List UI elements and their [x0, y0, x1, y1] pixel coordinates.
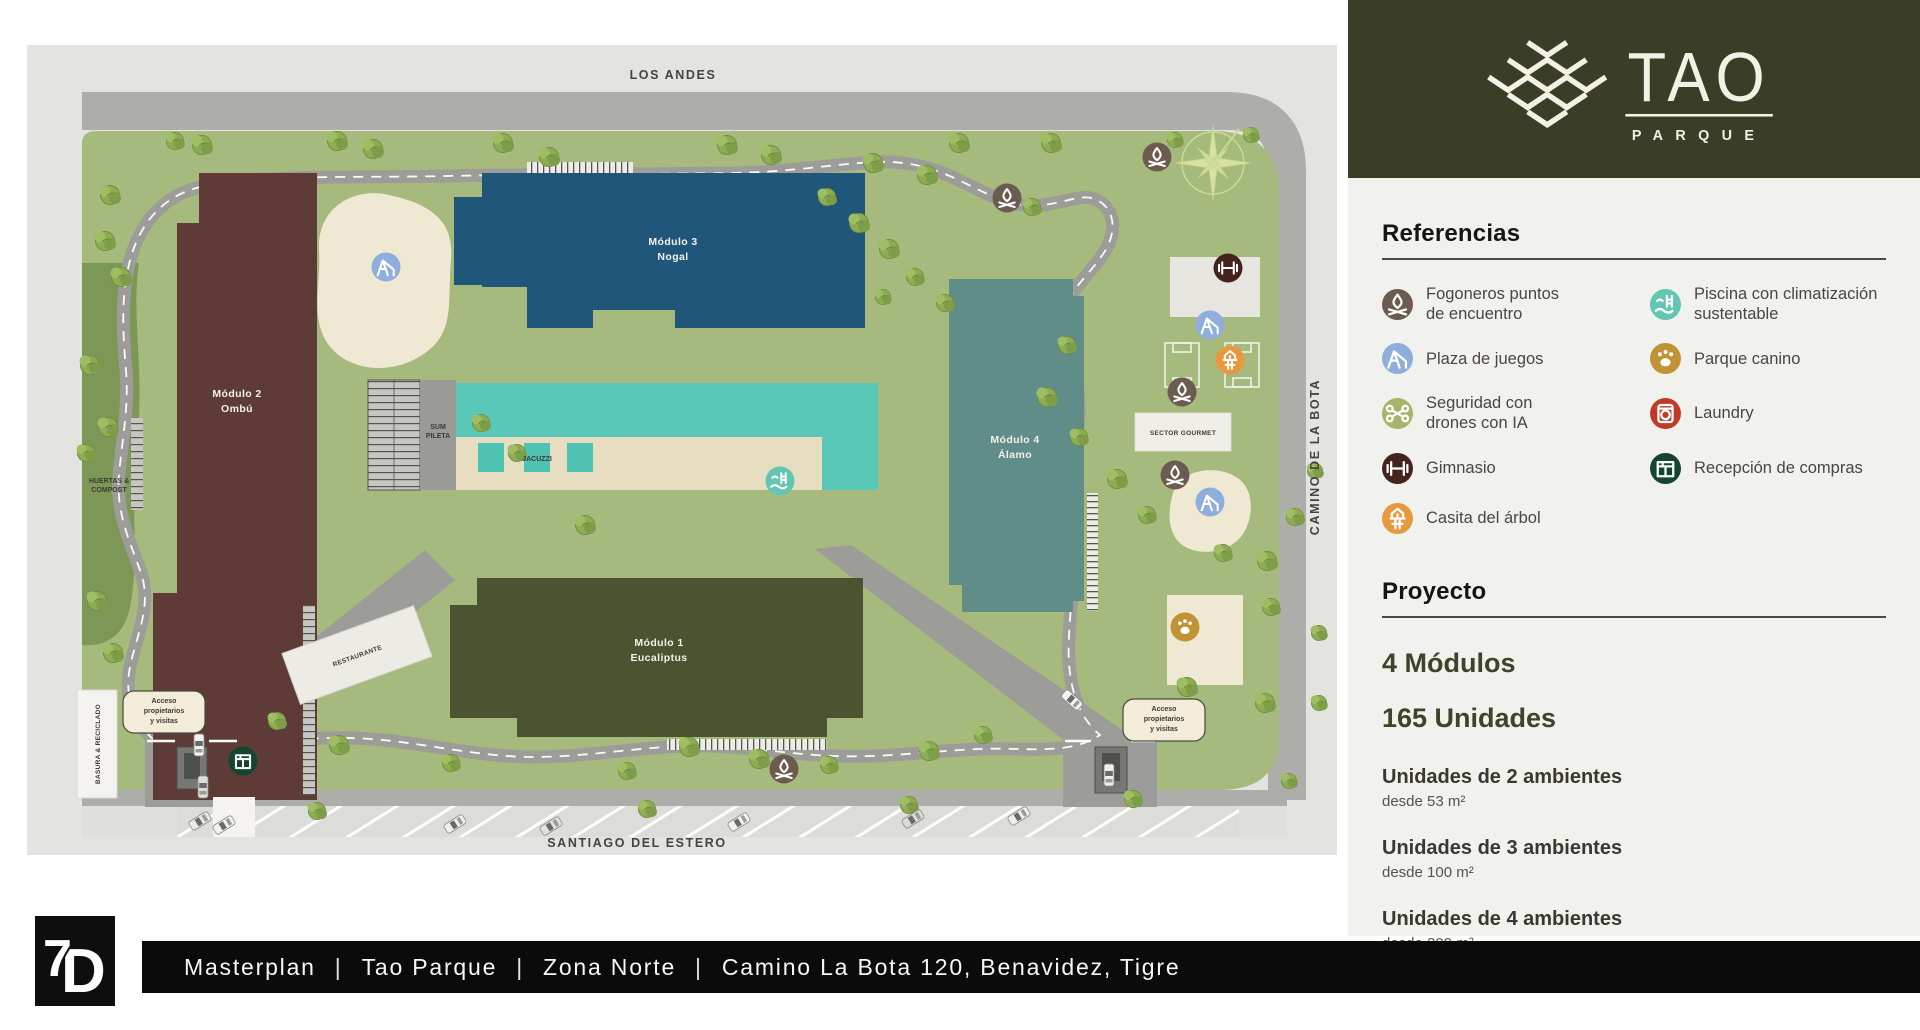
legend-item: Piscina con climatización sustentable [1650, 284, 1886, 324]
jacuzzi [478, 443, 504, 472]
playground-map-icon [1196, 488, 1225, 517]
breadcrumb-item: Zona Norte [543, 954, 676, 981]
acceso-label-right: Acceso propietarios y visitas [1123, 699, 1205, 741]
modulo-4-tree-label: Álamo [998, 448, 1032, 461]
pool [456, 383, 878, 437]
huertas-label2: COMPOST [91, 487, 127, 494]
modulo-1-tree-label: Eucaliptus [630, 652, 687, 664]
gym-map-icon [1214, 254, 1243, 283]
referencias-title: Referencias [1382, 220, 1886, 248]
playground-map-icon [1196, 311, 1225, 340]
breadcrumb-item: Masterplan [184, 954, 316, 981]
unit-item: Unidades de 2 ambientes desde 53 m² [1382, 766, 1886, 810]
legend-label: Recepción de compras [1694, 458, 1863, 478]
footer-breadcrumb-bar: Masterplan|Tao Parque|Zona Norte|Camino … [142, 941, 1920, 993]
unit-title: Unidades de 4 ambientes [1382, 908, 1886, 931]
campfire-map-icon [1168, 378, 1197, 407]
modulo-1-label: Módulo 1 [634, 637, 683, 649]
legend-item: Casita del árbol [1382, 503, 1644, 534]
unit-subtitle: desde 53 m² [1382, 793, 1886, 810]
logo-title: TAO [1627, 38, 1770, 116]
stat-modulos: 4 Módulos [1382, 648, 1886, 679]
legend-item: Recepción de compras [1650, 453, 1886, 484]
referencias-divider [1382, 258, 1886, 260]
developer-logo: D 7 [33, 912, 119, 1012]
brand-header: TAO PARQUE [1348, 0, 1920, 178]
legend-label: Gimnasio [1426, 458, 1496, 478]
paw-map-icon [1171, 613, 1200, 642]
modulo-2-tree-label: Ombú [221, 403, 253, 415]
legend-label: Piscina con climatización sustentable [1694, 284, 1877, 324]
gate-booth-left-roof [184, 753, 200, 779]
package-icon [1650, 453, 1681, 484]
units-list: Unidades de 2 ambientes desde 53 m² Unid… [1382, 766, 1886, 952]
sector-gourmet-label: SECTOR GOURMET [1150, 430, 1216, 437]
street-label-camino-de-la-bota: CAMINO DE LA BOTA [1308, 379, 1322, 535]
legend-label: Laundry [1694, 403, 1754, 423]
campfire-map-icon [993, 184, 1022, 213]
acceso-right-l2: propietarios [1144, 716, 1185, 723]
dog-park-pad [1167, 595, 1243, 685]
paw-icon [1650, 343, 1681, 374]
acceso-label-left: Acceso propietarios y visitas [123, 691, 205, 733]
acceso-right-l1: Acceso [1152, 706, 1177, 713]
legend-label: Plaza de juegos [1426, 349, 1543, 369]
treehouse-map-icon [1216, 346, 1245, 375]
street-label-los-andes: LOS ANDES [630, 68, 717, 82]
parking-stripes [177, 806, 1239, 837]
acceso-left-l1: Acceso [152, 698, 177, 705]
campfire-map-icon [1161, 461, 1190, 490]
breadcrumb-item: Tao Parque [362, 954, 498, 981]
jacuzzi-label: JACUZZI [522, 456, 552, 463]
proyecto-title: Proyecto [1382, 578, 1886, 606]
proyecto-divider [1382, 616, 1886, 618]
campfire-icon [1382, 289, 1413, 320]
legend-label: Casita del árbol [1426, 508, 1541, 528]
logo-underline [1625, 114, 1773, 117]
legend-grid: Fogoneros puntos de encuentro Piscina co… [1382, 284, 1886, 534]
svg-text:7: 7 [43, 930, 72, 988]
stair-strip [131, 418, 143, 510]
laundry-icon [1650, 398, 1681, 429]
breadcrumb-separator: | [516, 954, 524, 981]
building-modulo-3-wing [454, 197, 482, 285]
sum-label2: PILETA [426, 433, 450, 440]
drone-icon [1382, 398, 1413, 429]
sum-label: SUM [430, 424, 446, 431]
legend-label: Seguridad con drones con IA [1426, 393, 1532, 433]
chevron-pattern-icon [1489, 42, 1606, 124]
legend-item: Fogoneros puntos de encuentro [1382, 284, 1644, 324]
unit-title: Unidades de 3 ambientes [1382, 837, 1886, 860]
jacuzzi [567, 443, 593, 472]
pool-map-icon [766, 467, 795, 496]
car-icon [198, 776, 208, 798]
pool-east [822, 437, 878, 490]
modulo-3-tree-label: Nogal [657, 251, 688, 263]
unit-subtitle: desde 100 m² [1382, 864, 1886, 881]
modulo-3-label: Módulo 3 [648, 236, 697, 248]
legend-label: Fogoneros puntos de encuentro [1426, 284, 1559, 324]
referencias-section: Referencias Fogoneros puntos de encuentr… [1382, 220, 1886, 534]
legend-item: Gimnasio [1382, 453, 1644, 484]
legend-label: Parque canino [1694, 349, 1800, 369]
stat-unidades: 165 Unidades [1382, 703, 1886, 734]
tao-parque-logo: TAO PARQUE [1469, 25, 1799, 153]
basura-label: BASURA & RECICLADO [95, 704, 102, 784]
breadcrumb-separator: | [335, 954, 343, 981]
unit-title: Unidades de 2 ambientes [1382, 766, 1886, 789]
page: RESTAURANTE SECTOR GOURMET BASURA & RECI… [0, 0, 1920, 1030]
proyecto-section: Proyecto 4 Módulos 165 Unidades Unidades… [1382, 578, 1886, 952]
playground-map-icon [372, 253, 401, 282]
acceso-left-l3: y visitas [150, 718, 178, 725]
car-icon [1104, 764, 1114, 786]
unit-item: Unidades de 3 ambientes desde 100 m² [1382, 837, 1886, 881]
modulo-2-label: Módulo 2 [212, 388, 261, 400]
car-icon [194, 734, 204, 756]
breadcrumb-separator: | [695, 954, 703, 981]
campfire-map-icon [770, 755, 799, 784]
pergola-strip [1087, 493, 1098, 611]
package-map-icon [229, 747, 258, 776]
legend-item: Seguridad con drones con IA [1382, 393, 1644, 433]
huertas-label: HUERTAS & [89, 478, 129, 485]
treehouse-icon [1382, 503, 1413, 534]
masterplan-map: RESTAURANTE SECTOR GOURMET BASURA & RECI… [27, 45, 1337, 855]
playground-icon [1382, 343, 1413, 374]
pool-icon [1650, 289, 1681, 320]
breadcrumb-item: Camino La Bota 120, Benavidez, Tigre [722, 954, 1181, 981]
campfire-map-icon [1143, 143, 1172, 172]
modulo-4-label: Módulo 4 [990, 434, 1039, 446]
gym-icon [1382, 453, 1413, 484]
street-label-santiago-del-estero: SANTIAGO DEL ESTERO [547, 836, 727, 850]
acceso-left-l2: propietarios [144, 708, 185, 715]
legend-item: Laundry [1650, 393, 1886, 433]
acceso-right-l3: y visitas [1150, 726, 1178, 733]
info-sidebar: TAO PARQUE Referencias Fogoneros puntos … [1348, 0, 1920, 936]
legend-item: Parque canino [1650, 343, 1886, 374]
legend-item: Plaza de juegos [1382, 343, 1644, 374]
logo-subtitle: PARQUE [1632, 127, 1767, 144]
